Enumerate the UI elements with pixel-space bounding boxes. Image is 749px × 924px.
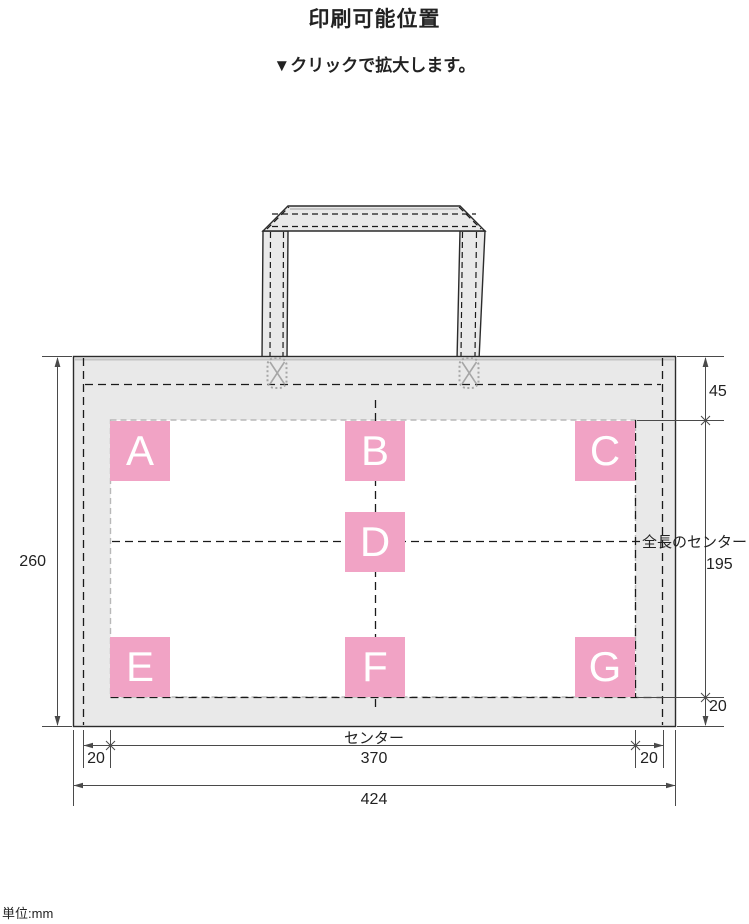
marker-letter: F	[362, 646, 388, 688]
dim-label-total-width-424: 424	[304, 791, 444, 809]
print-position-marker-a[interactable]: A	[110, 421, 170, 481]
dim-label-print-height-195: 195	[706, 556, 733, 574]
arrowhead-right	[654, 743, 664, 749]
print-position-marker-d[interactable]: D	[345, 512, 405, 572]
marker-letter: E	[126, 646, 154, 688]
dimension-260	[42, 357, 72, 727]
marker-letter: C	[590, 430, 620, 472]
print-position-marker-c[interactable]: C	[575, 421, 635, 481]
dim-label-top-45: 45	[709, 383, 727, 401]
tote-bag-print-position-diagram[interactable]: A B C D E F G 260 45 全長のセンター 195 20 センター…	[0, 0, 749, 924]
print-position-marker-e[interactable]: E	[110, 637, 170, 697]
arrowhead-down	[703, 716, 709, 726]
marker-letter: G	[589, 646, 622, 688]
bag-handle	[262, 206, 485, 360]
arrowhead-up	[703, 357, 709, 367]
arrowhead-left	[74, 783, 84, 789]
page: 印刷可能位置 ▼クリックで拡大します。	[0, 0, 749, 924]
dim-label-height-260: 260	[8, 553, 46, 571]
dim-label-right-20: 20	[629, 750, 669, 768]
marker-letter: A	[126, 430, 154, 472]
arrowhead-right	[666, 783, 676, 789]
arrowhead-up	[55, 357, 61, 367]
unit-note: 単位:mm	[2, 903, 53, 922]
dim-label-print-width-370: 370	[304, 750, 444, 768]
center-label: センター	[304, 727, 444, 748]
dim-label-bottom-20: 20	[709, 698, 727, 716]
full-length-center-label: 全長のセンター	[642, 531, 747, 552]
handle-left-strap	[262, 231, 288, 360]
print-position-marker-f[interactable]: F	[345, 637, 405, 697]
marker-letter: D	[360, 521, 390, 563]
dim-label-left-20: 20	[76, 750, 116, 768]
arrowhead-down	[55, 716, 61, 726]
arrowhead-left	[84, 743, 94, 749]
print-position-marker-b[interactable]: B	[345, 421, 405, 481]
print-position-marker-g[interactable]: G	[575, 637, 635, 697]
marker-letter: B	[361, 430, 389, 472]
